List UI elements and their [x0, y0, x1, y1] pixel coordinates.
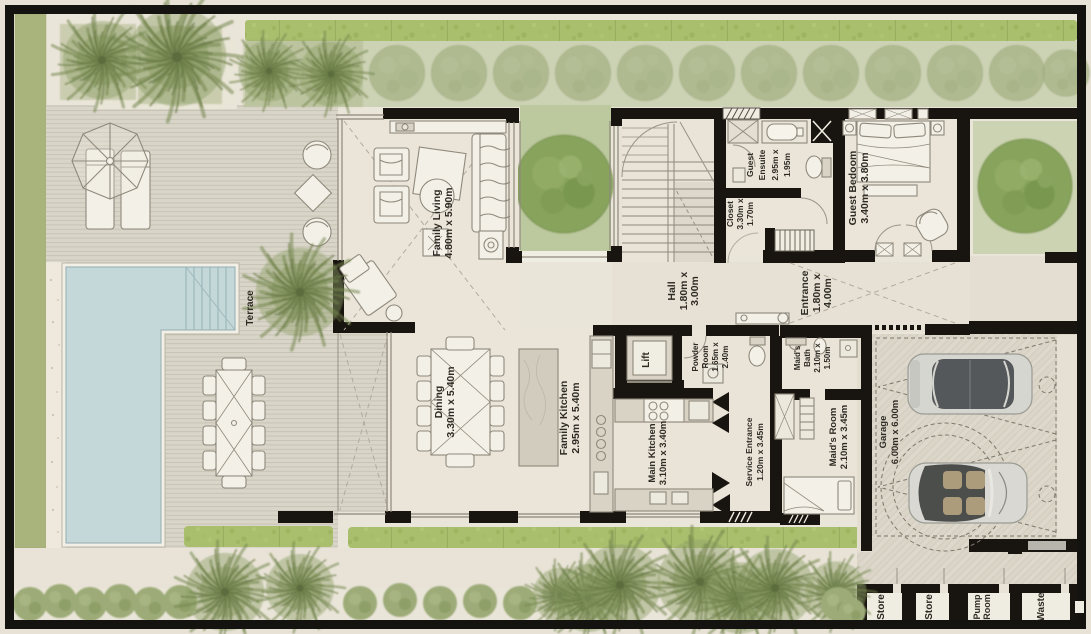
svg-text:Closet3.30m x1.70m: Closet3.30m x1.70m — [725, 198, 755, 229]
svg-text:Service Entrance1.20m x 3.45m: Service Entrance1.20m x 3.45m — [744, 417, 765, 486]
svg-text:Maid'sBath2.10m x1.50m: Maid'sBath2.10m x1.50m — [793, 343, 832, 373]
svg-text:PowderRoom1.65m x2.40m: PowderRoom1.65m x2.40m — [691, 342, 730, 372]
svg-text:Maid's Room2.10m x 3.45m: Maid's Room2.10m x 3.45m — [828, 405, 850, 469]
svg-text:Main Kitchen3.10m x 3.40m: Main Kitchen3.10m x 3.40m — [647, 421, 669, 485]
svg-text:Waste: Waste — [1036, 592, 1047, 622]
svg-text:Terrace: Terrace — [245, 290, 256, 326]
svg-text:PumpRoom: PumpRoom — [972, 594, 992, 620]
svg-text:Family Kitchen2.95m x 5.40m: Family Kitchen2.95m x 5.40m — [558, 381, 582, 456]
svg-text:Guest Bedoom3.40m x 3.80m: Guest Bedoom3.40m x 3.80m — [847, 151, 871, 226]
svg-text:Family Living4.80m x 5.90m: Family Living4.80m x 5.90m — [431, 187, 455, 258]
svg-text:Store: Store — [924, 594, 935, 620]
svg-text:Store: Store — [876, 594, 887, 620]
svg-text:Lift: Lift — [641, 352, 652, 368]
